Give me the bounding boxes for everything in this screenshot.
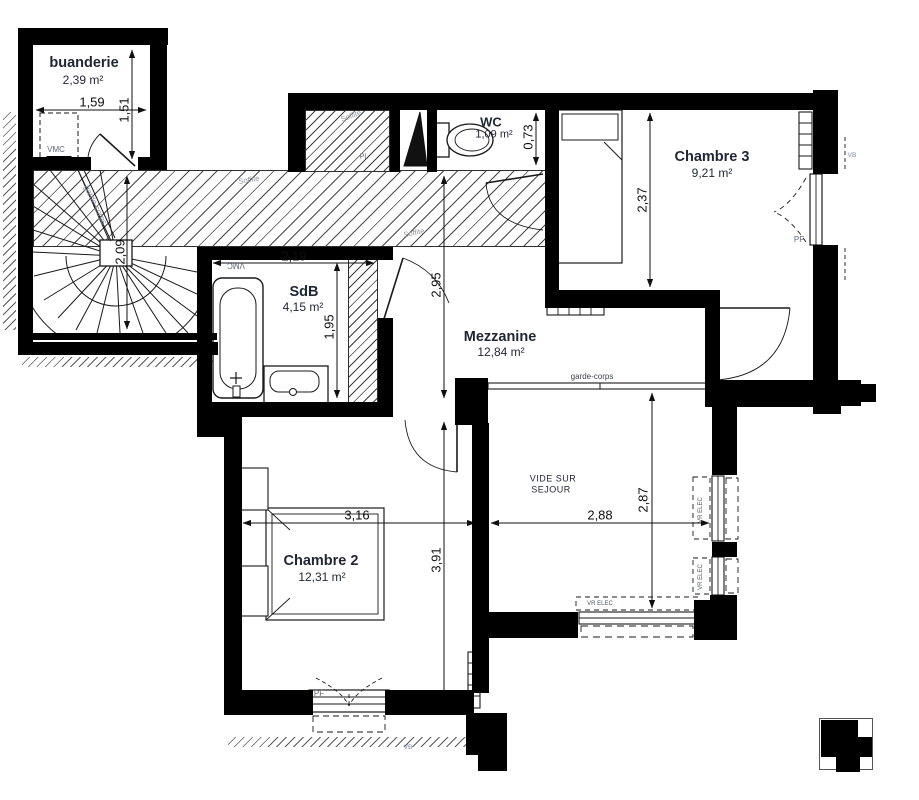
wall-buanderie-bottom-left: [33, 157, 91, 170]
label-garde-corps-mezzanine: garde-corps: [571, 373, 614, 381]
washbasin-icon: [264, 366, 328, 403]
wall-chambre3-right-bottom: [813, 245, 838, 407]
room-name-mezzanine: Mezzanine: [464, 330, 537, 345]
room-name-wc: WC: [480, 116, 502, 129]
bathtub-icon: [213, 278, 263, 398]
wall-band-left: [288, 93, 305, 172]
label-vr-elec-right-2: VR ELEC: [698, 564, 704, 590]
label-pf-chambre3: PF: [794, 236, 804, 244]
garde-corps-railing: [488, 383, 713, 389]
room-name-chambre2: Chambre 2: [284, 554, 359, 569]
wall-closet-right: [427, 95, 437, 172]
wall-chambre3-bottom: [545, 290, 720, 308]
label-sejour: SEJOUR: [531, 486, 571, 495]
dim-stairs-height: 2,09: [114, 239, 127, 264]
dim-vide-height: 2,87: [637, 487, 650, 512]
room-area-buanderie: 2,39 m²: [63, 74, 104, 86]
dim-chambre2-width: 3,16: [344, 509, 369, 522]
dim-sdb-height: 1,95: [323, 314, 336, 339]
wall-chambre2-step-1: [466, 713, 507, 755]
room-name-buanderie: buanderie: [49, 56, 118, 71]
wall-vide-right-low: [710, 595, 737, 610]
label-vb-top: VB: [848, 153, 857, 160]
door-wc: [486, 174, 543, 230]
dim-chambre3-height: 2,37: [636, 187, 649, 212]
room-area-wc: 1,09 m²: [475, 130, 512, 141]
dim-vide-width: 2,88: [587, 509, 612, 522]
wall-chambre2-bottom-left: [224, 690, 313, 715]
wall-buanderie-bottom-right: [138, 157, 167, 170]
wall-stairs-bottom-inner: [33, 333, 217, 340]
window-pf-chambre2: [309, 678, 389, 732]
room-area-mezzanine: 12,84 m²: [477, 346, 524, 358]
dim-chambre2-height: 3,91: [430, 547, 443, 572]
label-vide-sur: VIDE SUR: [530, 475, 577, 484]
door-buanderie: [88, 134, 135, 166]
wall-stairs-bottom-outer: [18, 342, 218, 355]
wall-gardecorps-top: [713, 380, 815, 407]
label-vb-bottom: VB: [404, 745, 413, 752]
dim-sdb-width: 2,19: [281, 250, 306, 263]
wall-top-band: [288, 93, 838, 110]
dim-mezzanine-height: 2,95: [430, 272, 443, 297]
wall-chambre3-left: [545, 95, 559, 290]
room-area-chambre2: 12,31 m²: [298, 571, 345, 583]
room-name-sdb: SdB: [290, 285, 319, 300]
wall-chambre2-step-2: [478, 753, 507, 771]
wall-left-outer: [18, 28, 33, 355]
wall-vide-right-mid: [712, 542, 737, 557]
room-area-chambre3: 9,21 m²: [692, 167, 733, 179]
room-area-sdb: 4,15 m²: [283, 301, 324, 313]
room-name-chambre3: Chambre 3: [675, 150, 750, 165]
wall-vide-right-top: [712, 407, 737, 475]
wall-vide-bottom-left: [474, 612, 578, 638]
wall-sdb-bottom: [197, 402, 388, 417]
wall-mezzanine-right: [705, 290, 720, 407]
label-vr-elec-right-1: VR ELEC: [698, 497, 704, 523]
door-chambre2: [405, 420, 457, 472]
bed-chambre2-icon: [238, 468, 384, 620]
door-chambre3: [718, 308, 790, 380]
chimney-fill-3: [836, 752, 860, 772]
wall-pillar-mezzanine: [455, 378, 488, 425]
floor-plan: buanderie 2,39 m² WC 1,09 m² Chambre 3 9…: [0, 0, 919, 800]
wall-sdb-left: [197, 247, 212, 417]
label-vmc-buanderie: VMC: [47, 146, 65, 154]
dim-wc-depth: 0,73: [522, 124, 535, 149]
dim-buanderie-width: 1,59: [79, 96, 104, 109]
label-pf-chambre2: PF: [314, 690, 324, 698]
wall-buanderie-top: [18, 28, 168, 45]
label-vmc-sdb: VMC: [227, 261, 245, 269]
wall-pl-divider: [390, 108, 400, 172]
wall-chambre2-right: [472, 423, 489, 693]
wall-step-3: [858, 384, 876, 402]
dim-buanderie-height: 1,51: [118, 97, 131, 122]
label-vr-elec-bottom: VR ELEC: [587, 601, 613, 607]
wall-buanderie-right: [150, 30, 167, 168]
closet-door-leaf: [404, 112, 427, 166]
radiator-chambre3-icon: [799, 112, 812, 169]
label-pl: PL: [360, 154, 369, 161]
bed-chambre3-icon: [558, 110, 622, 263]
wall-chambre2-bottom-right: [385, 690, 474, 715]
wall-chambre2-left: [224, 420, 242, 715]
